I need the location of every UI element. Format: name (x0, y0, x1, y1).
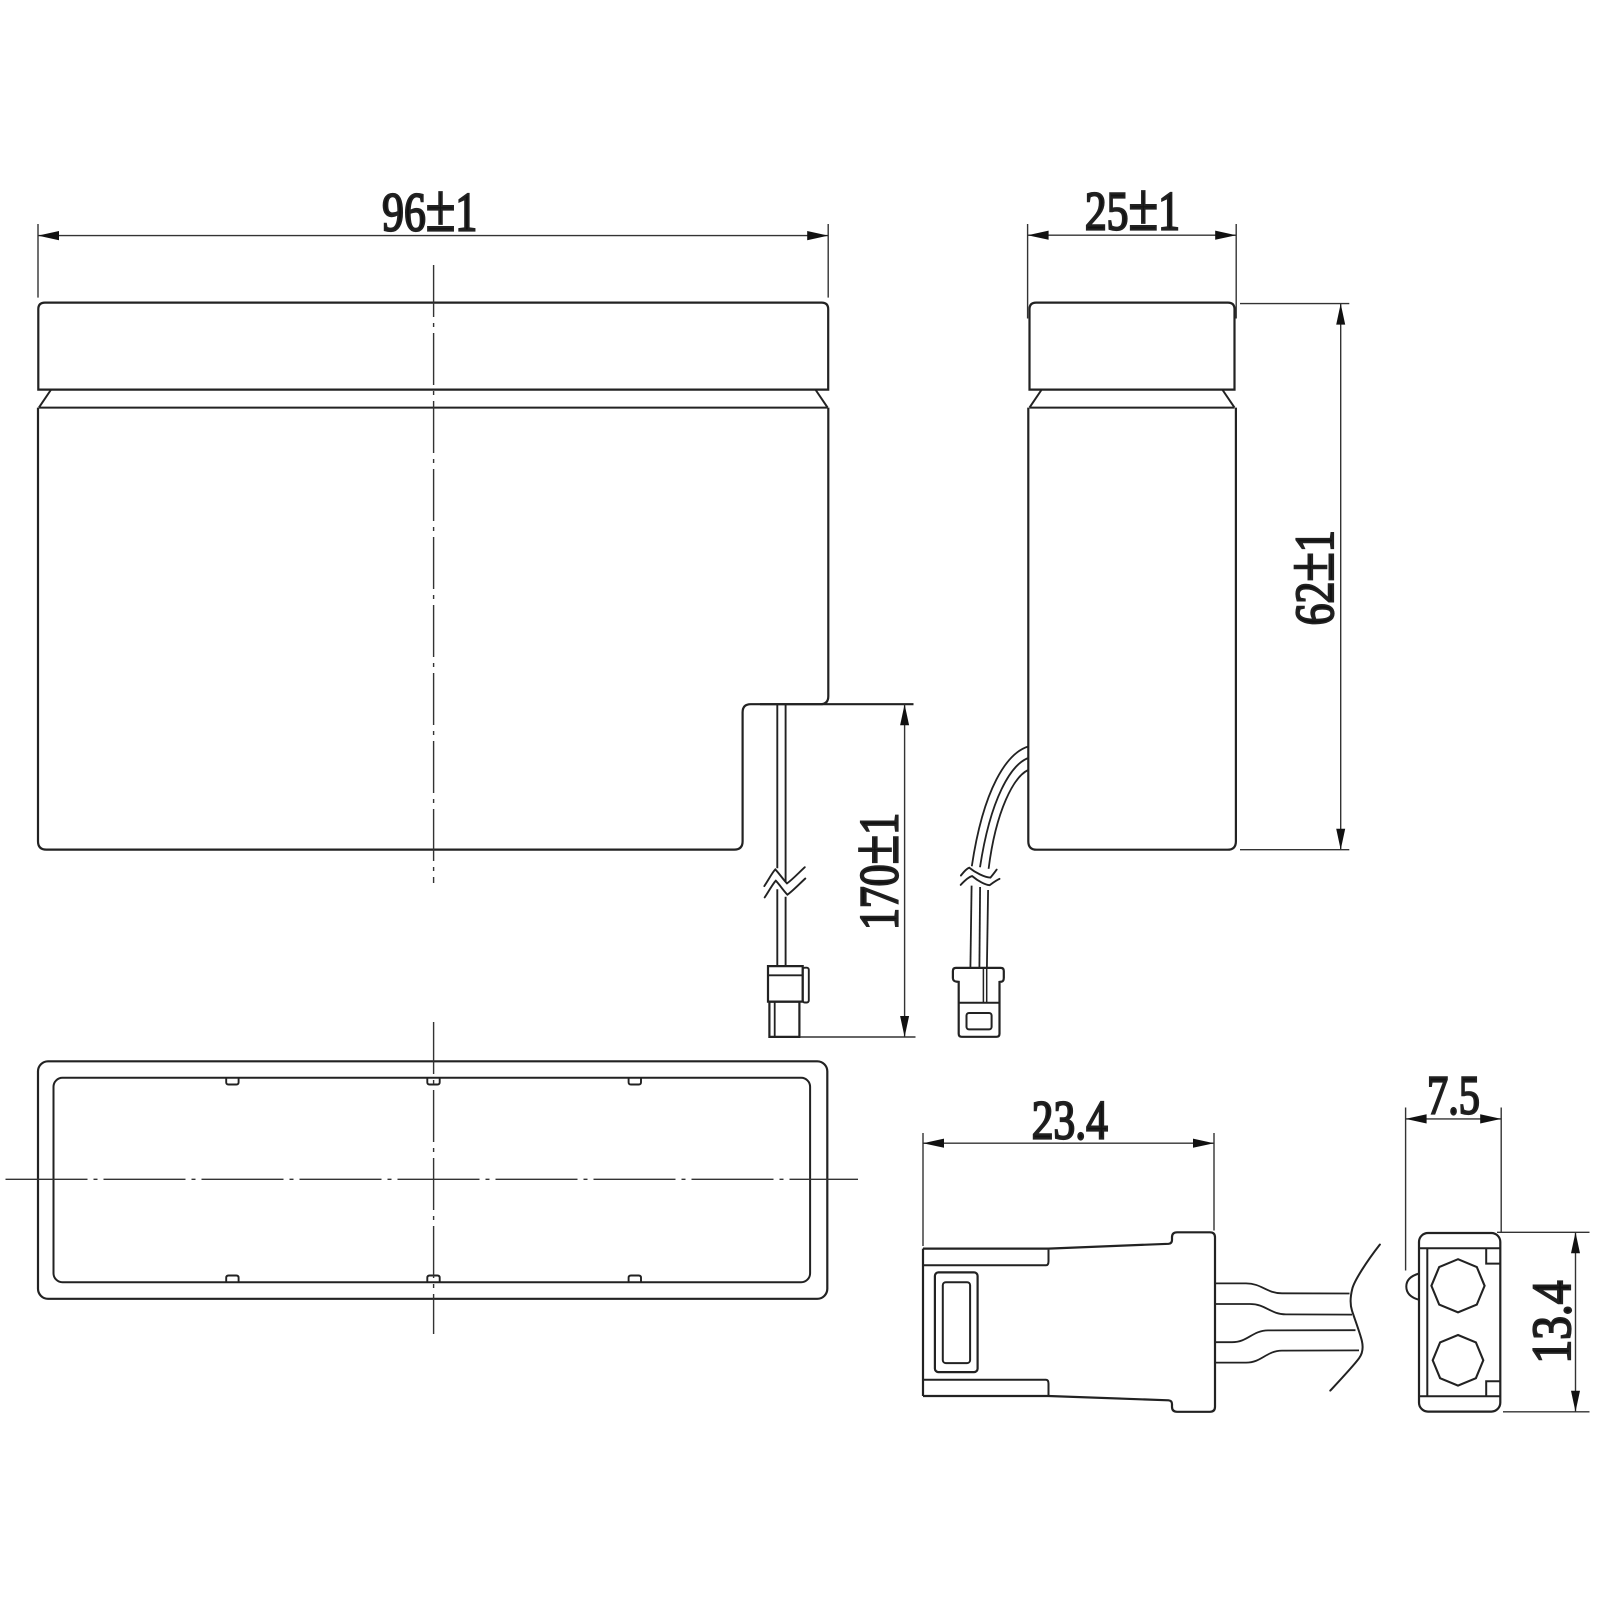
svg-text:23.4: 23.4 (1032, 1090, 1108, 1151)
svg-text:170±1: 170±1 (838, 813, 913, 930)
svg-text:62±1: 62±1 (1273, 530, 1348, 625)
svg-text:7.5: 7.5 (1427, 1064, 1480, 1126)
svg-text:13.4: 13.4 (1522, 1281, 1583, 1364)
svg-text:96±1: 96±1 (382, 171, 477, 246)
svg-text:25±1: 25±1 (1085, 170, 1180, 245)
